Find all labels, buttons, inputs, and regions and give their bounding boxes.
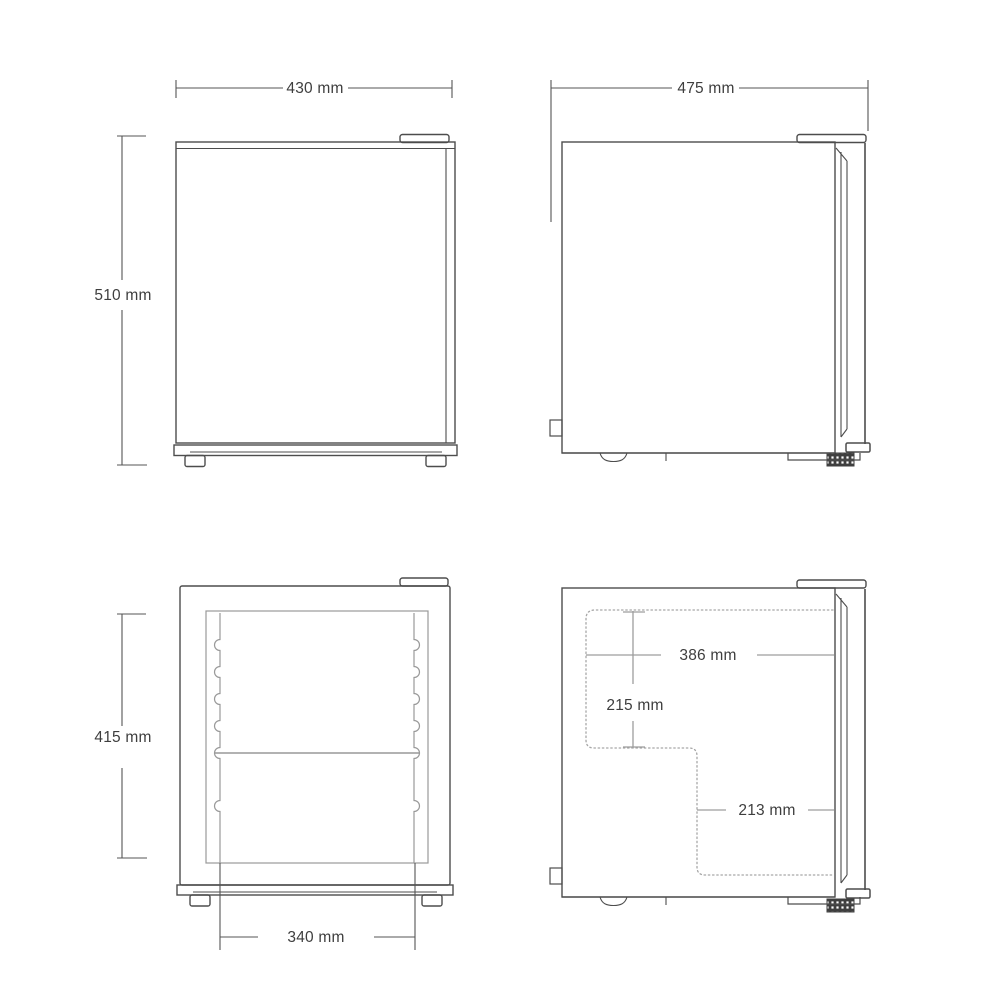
door-bottom-cap <box>846 889 870 898</box>
dim-label-interior-depth-upper: 386 mm <box>679 647 736 664</box>
side-exterior-view <box>550 135 870 467</box>
diagram-drawing: 430 mm 510 mm 475 mm 415 m <box>0 0 1000 1000</box>
left-shelf-rail <box>215 613 221 863</box>
dim-label-interior-width: 340 mm <box>287 929 344 946</box>
dim-label-interior-height-upper: 215 mm <box>606 697 663 714</box>
dim-label-exterior-width: 430 mm <box>286 80 343 97</box>
rear-foot <box>600 453 627 462</box>
dimension-diagram: 430 mm 510 mm 475 mm 415 m <box>0 0 1000 1000</box>
hinge-cap <box>797 580 866 588</box>
rear-plug-box <box>550 420 562 436</box>
right-foot <box>422 895 442 906</box>
bottom-hinge-hatch <box>827 899 854 912</box>
rear-plug-box <box>550 868 562 884</box>
kickplate <box>177 885 453 895</box>
side-interior-view <box>550 580 870 912</box>
cabinet-body <box>562 588 835 897</box>
dim-label-interior-depth-lower: 213 mm <box>738 802 795 819</box>
kickplate <box>174 445 457 456</box>
front-exterior-view <box>174 135 457 467</box>
door-inner-edge <box>836 594 847 883</box>
interior-height-upper-dim-line <box>623 611 645 747</box>
door-inner-edge <box>836 148 847 437</box>
front-interior-dimensions <box>117 614 415 950</box>
cabinet-body <box>562 142 835 453</box>
right-foot <box>426 456 446 467</box>
door-bottom-cap <box>846 443 870 452</box>
side-exterior-dimensions <box>551 80 868 222</box>
front-exterior-dimensions <box>117 80 452 465</box>
right-shelf-rail <box>414 613 420 863</box>
hinge-cap <box>400 578 448 586</box>
rear-foot <box>600 897 627 906</box>
cabinet-body <box>176 142 455 443</box>
cavity-opening <box>206 611 428 863</box>
dim-label-exterior-height: 510 mm <box>94 287 151 304</box>
left-foot <box>190 895 210 906</box>
front-interior-view <box>177 578 453 906</box>
interior-cavity <box>206 611 428 863</box>
left-foot <box>185 456 205 467</box>
dim-label-exterior-depth: 475 mm <box>677 80 734 97</box>
dim-label-interior-height: 415 mm <box>94 729 151 746</box>
depth-dim-line <box>551 80 868 222</box>
